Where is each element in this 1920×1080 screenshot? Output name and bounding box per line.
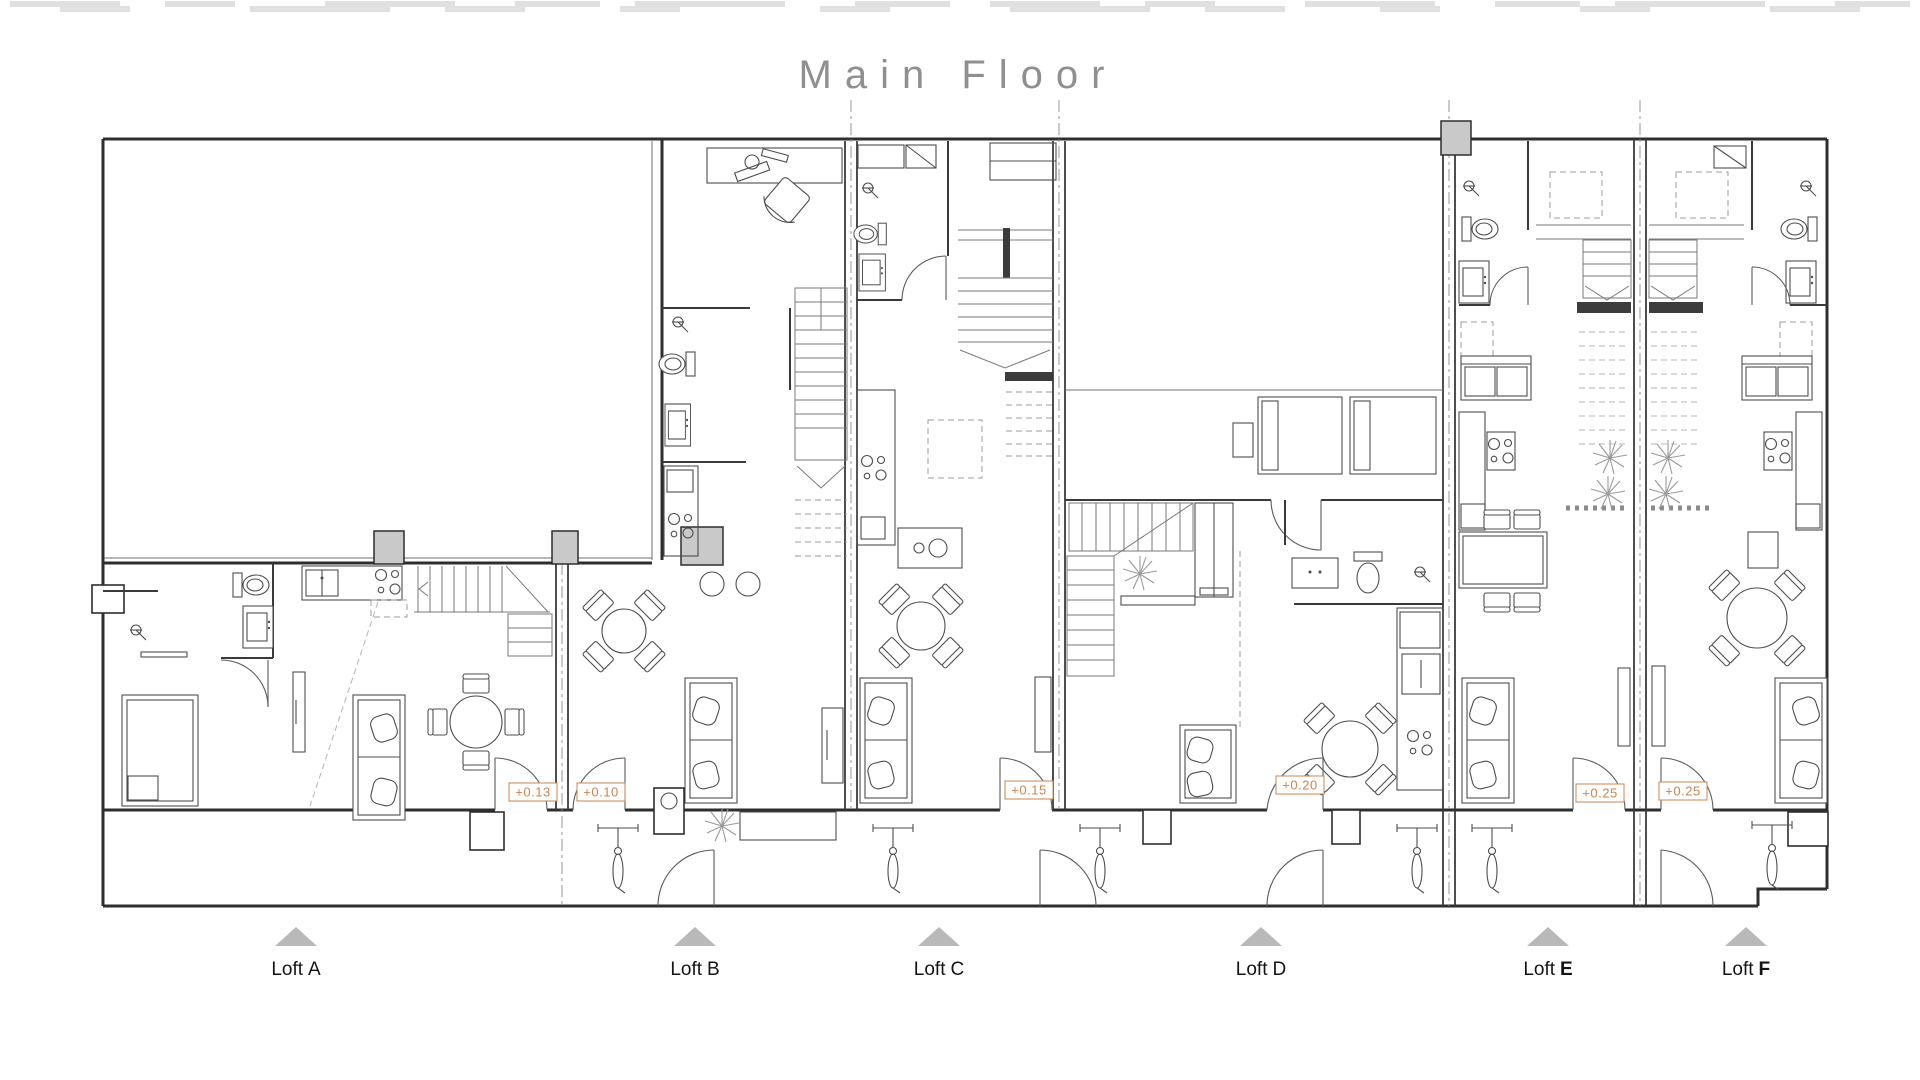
elevation-marker: +0.25 [1576,784,1624,802]
bicycle-icon [1080,824,1120,893]
closet-dashed-symbol [1780,322,1812,358]
loft-c-bathroom [854,141,948,300]
loft-c-stairs [958,228,1053,456]
loft-f-void-dashed [1649,332,1714,510]
svg-text:LoftF: LoftF [1722,959,1770,980]
tv-unit-symbol [822,708,843,783]
loft-d-hall-wall [1065,500,1443,550]
unit-labels: LoftA LoftB LoftC LoftD LoftE LoftF [271,927,1770,980]
loft-c-unit [854,141,1056,803]
loft-b-dining-table [582,589,665,672]
plant-icon [1593,440,1627,474]
sofa-symbol [860,678,912,803]
loft-b-desk-area [707,148,842,229]
shower-icon [862,183,878,198]
loft-a-unit [103,563,552,820]
loft-a-kitchen [302,566,407,617]
unit-label-loft-d: LoftD [1236,927,1286,980]
loft-a-bathroom [103,563,273,707]
office-chair-symbol [758,174,813,229]
elevation-marker: +0.15 [1005,781,1053,799]
tv-unit-symbol [293,672,305,752]
loft-b-bathroom [659,308,790,462]
svg-text:LoftB: LoftB [670,959,719,980]
loft-e-dining-table [1459,510,1547,612]
sofa-symbol [685,678,737,803]
triangle-marker-icon [674,927,716,946]
unit-label-loft-f: LoftF [1722,927,1770,980]
loft-d-bathroom [1285,500,1443,604]
loft-e-unit [1459,141,1631,803]
sofa-symbol [1775,678,1827,803]
bicycle-icon [1397,824,1437,893]
closet-dashed-symbol [1461,322,1493,358]
washer-symbol [654,788,684,834]
triangle-marker-icon [1725,927,1767,946]
bed-symbol [1258,397,1342,474]
unit-label-loft-b: LoftB [670,927,719,980]
shower-icon [672,317,688,332]
loft-c-dining-table [878,583,963,668]
shower-icon [1463,181,1479,196]
triangle-marker-icon [275,927,317,946]
elevation-marker: +0.13 [509,783,557,801]
loft-b-stairs [795,288,847,556]
tv-unit-symbol [1618,668,1630,746]
loft-d-stairs [1067,503,1193,676]
loft-d-wardrobe [1195,503,1233,597]
stove-icon [1408,731,1433,756]
sofa-symbol [1461,356,1531,400]
tv-unit-symbol [1035,677,1051,752]
tv-unit-symbol [1652,666,1665,746]
svg-text:+0.15: +0.15 [1011,783,1046,798]
unit-label-loft-e: LoftE [1523,927,1572,980]
bicycle-icon [598,824,638,893]
toilet-symbol [1354,552,1382,593]
loft-e-bathroom [1459,141,1528,305]
shower-icon [1800,181,1816,196]
loft-f-unit [1649,141,1827,803]
plant-icon [705,808,739,842]
loft-a-bedroom [122,695,198,806]
loft-d-unit [1065,390,1443,803]
closet-dashed-symbol [928,420,982,478]
stove-icon [862,456,887,481]
bicycle-icon [873,824,913,893]
plant-icon [1591,476,1625,510]
elevation-marker: +0.20 [1276,776,1324,794]
loft-e-stairs [1536,172,1631,313]
stove-icon [376,570,401,595]
page-title: Main Floor [799,53,1118,97]
loft-f-dining-table [1708,569,1805,666]
triangle-marker-icon [1527,927,1569,946]
loft-d-kitchen [1397,608,1443,790]
unit-label-loft-c: LoftC [914,927,964,980]
loft-c-kitchen [857,390,962,568]
svg-text:LoftC: LoftC [914,959,964,980]
sofa-symbol [1462,678,1514,803]
sofa-symbol [353,695,405,820]
svg-text:LoftE: LoftE [1523,959,1572,980]
svg-text:LoftD: LoftD [1236,959,1286,980]
elevation-marker: +0.25 [1659,782,1707,800]
svg-text:+0.10: +0.10 [583,785,618,800]
shower-icon [1414,567,1430,582]
elevation-marker: +0.10 [577,783,625,801]
loft-c-closets [858,143,1056,180]
triangle-marker-icon [918,927,960,946]
loft-f-stairs [1649,172,1744,313]
svg-text:+0.25: +0.25 [1665,784,1700,799]
loft-f-bathroom [1714,141,1827,305]
plant-icon [1651,440,1685,474]
stove-icon [1766,439,1791,464]
stove-icon [1489,439,1514,464]
svg-text:+0.20: +0.20 [1282,778,1317,793]
bed-symbol [1350,397,1436,474]
sofa-symbol [1180,725,1236,803]
loft-a-stairs [414,566,552,656]
svg-text:LoftA: LoftA [271,959,321,980]
unit-label-loft-a: LoftA [271,927,321,980]
sofa-symbol [1742,356,1812,400]
street-doors [658,850,1713,906]
loft-b-unit [582,148,847,834]
plant-icon [1649,476,1683,510]
loft-f-kitchen [1748,412,1822,568]
svg-text:+0.25: +0.25 [1582,786,1617,801]
bicycle-icon [1752,821,1792,890]
cropped-drawing-artifact-strip [10,4,1910,9]
shower-icon [130,625,146,640]
triangle-marker-icon [1240,927,1282,946]
floor-plan-canvas: Main Floor [0,0,1920,1080]
loft-d-bedroom [1233,397,1436,474]
loft-e-void-dashed [1566,332,1629,510]
svg-text:+0.13: +0.13 [515,785,550,800]
plant-icon [1123,556,1157,590]
bicycle-icon [1472,824,1512,893]
loft-a-dining-table [428,674,524,770]
